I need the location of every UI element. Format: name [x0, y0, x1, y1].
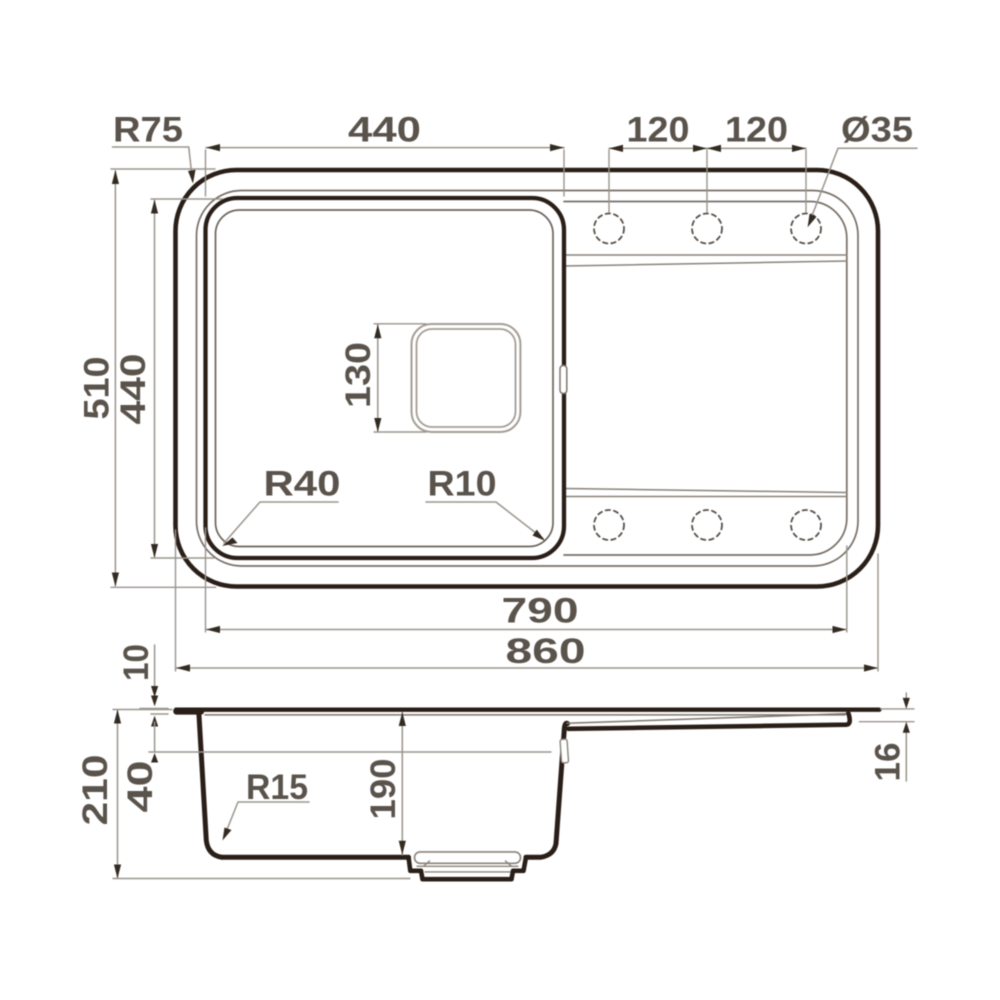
svg-text:510: 510 [78, 357, 117, 420]
svg-text:860: 860 [506, 632, 586, 671]
svg-text:210: 210 [76, 755, 115, 826]
svg-text:190: 190 [364, 759, 403, 820]
svg-text:10: 10 [117, 644, 156, 681]
svg-text:790: 790 [502, 592, 579, 631]
svg-text:120: 120 [725, 111, 788, 150]
svg-text:R15: R15 [246, 768, 308, 807]
svg-text:R40: R40 [264, 465, 341, 504]
svg-text:16: 16 [869, 743, 908, 782]
svg-text:440: 440 [348, 111, 421, 150]
svg-text:R10: R10 [428, 465, 497, 504]
svg-text:130: 130 [339, 342, 378, 408]
svg-text:40: 40 [121, 761, 160, 813]
svg-text:440: 440 [114, 354, 153, 425]
svg-text:120: 120 [627, 111, 690, 150]
svg-text:Ø35: Ø35 [841, 111, 913, 150]
svg-text:R75: R75 [113, 111, 183, 150]
